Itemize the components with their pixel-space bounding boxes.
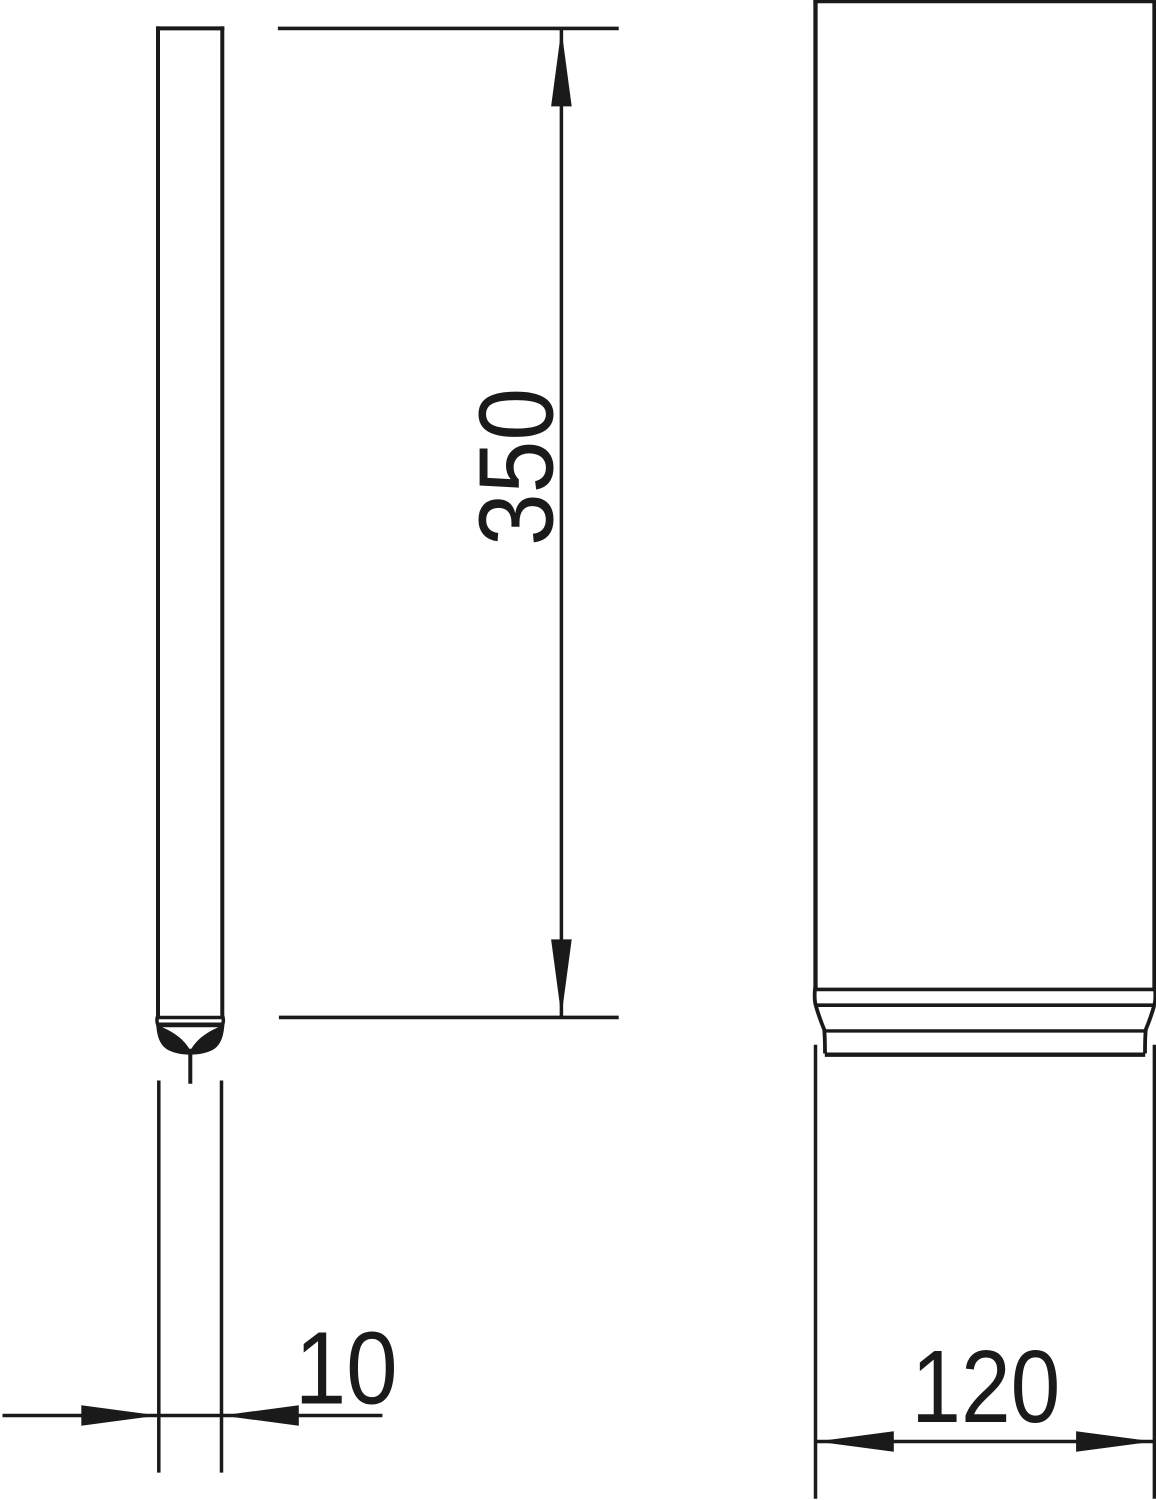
svg-text:350: 350 — [457, 388, 575, 546]
svg-text:120: 120 — [911, 1329, 1060, 1444]
svg-text:10: 10 — [295, 1311, 398, 1426]
